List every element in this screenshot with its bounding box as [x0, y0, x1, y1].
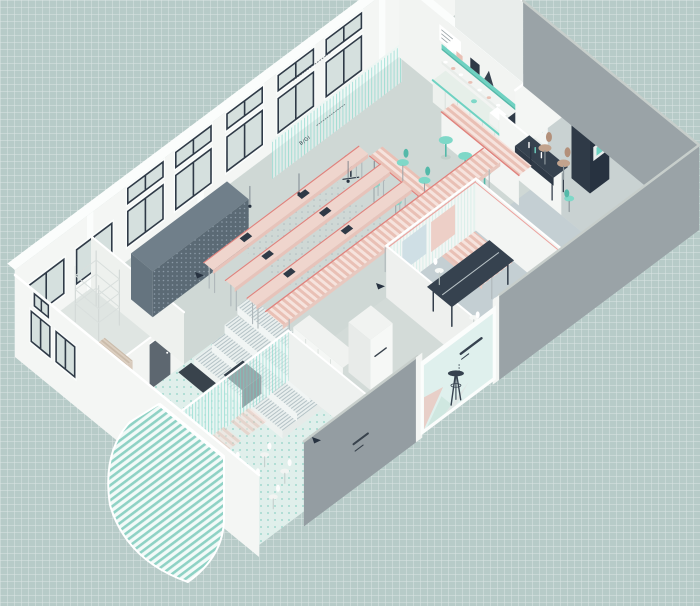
axonometric-floorplan: B/GI	[0, 0, 700, 606]
illustration-canvas: B/GI	[0, 0, 700, 606]
